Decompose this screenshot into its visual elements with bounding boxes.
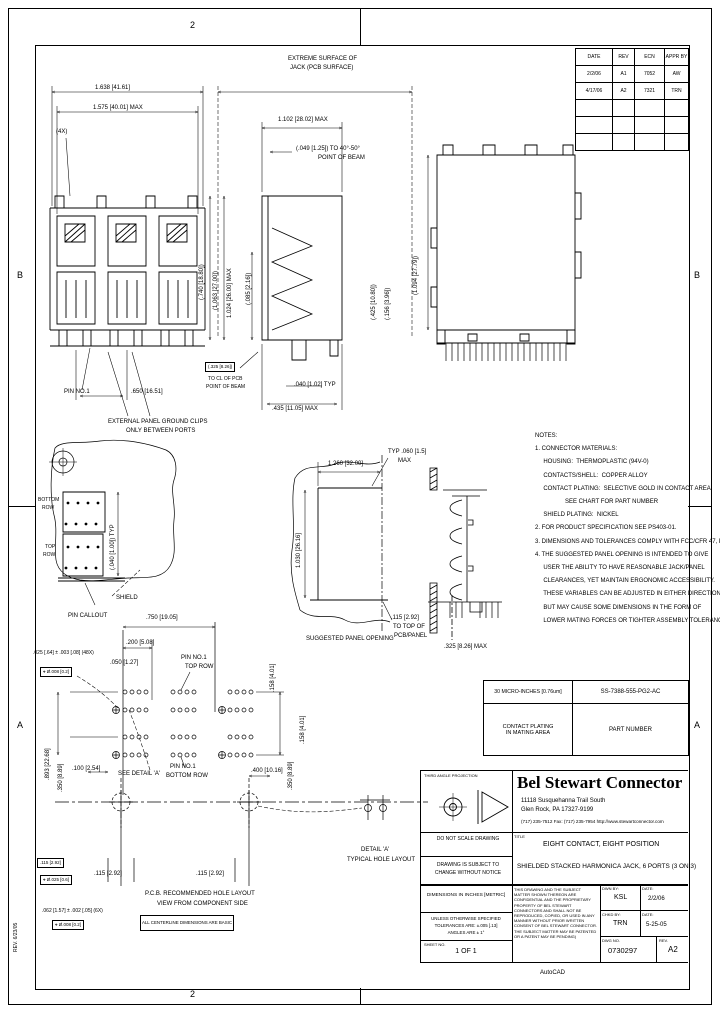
rev-col-date: DATE [576, 49, 613, 66]
dim-max-435: .435 [11.05] MAX [272, 406, 318, 413]
rev-cell: TRN [665, 83, 689, 100]
dim-mid-width: 1.102 [28.02] MAX [278, 117, 328, 124]
rev-cell-empty [635, 117, 665, 134]
dim-panel-115-2: TO TOP OF [393, 624, 425, 631]
rev-cell: A2 [613, 83, 635, 100]
rev-cell-empty [665, 100, 689, 117]
company-address-1: 11118 Susquehanna Trail South [521, 798, 605, 804]
label-pin-no1: PIN NO.1 [64, 389, 90, 396]
dim-to-cl: TO CL OF PCB [208, 376, 242, 383]
dim-typ-040: .040 [1.02] TYP [294, 382, 336, 389]
dim-panel-height: 1.030 [26.16] [296, 533, 303, 568]
dim-sec-085: (.085 [2.16]) [246, 273, 253, 305]
dim-pitch-650: .650 [16.51] [131, 389, 163, 396]
notes-block: NOTES: 1. CONNECTOR MATERIALS: HOUSING: … [535, 430, 720, 628]
part-number-value: SS-7388-555-PG2-AC [573, 681, 689, 704]
rev-cell: 7052 [635, 66, 665, 83]
gdt-frame-3: ⌖ Ø.008 [0.2] [52, 920, 84, 930]
dim-panel-115-1: .115 [2.92] [391, 615, 419, 622]
rev-col-rev: REV [613, 49, 635, 66]
label-drawn-by: DWN BY: [602, 886, 619, 891]
label-pcb-layout-title-2: VIEW FROM COMPONENT SIDE [157, 901, 248, 908]
proprietary-notice: THIS DRAWING AND THE SUBJECT MATTER SHOW… [514, 887, 598, 939]
gdt-frame-2: ⌖ Ø.025 [0.6] [40, 875, 72, 885]
dim-pcb-115-a: .115 [2.92] [94, 871, 122, 878]
divider-line [420, 770, 688, 771]
label-tolerance-2: TOLERANCES ARE: ±.005 [.13] [420, 923, 512, 928]
front-view [50, 196, 205, 346]
label-change-notice-2: CHANGE WITHOUT NOTICE [424, 870, 512, 876]
label-units: DIMENSIONS IN INCHES [METRIC] [420, 893, 512, 898]
dim-pcb-158-right: .158 [4.01] [300, 716, 307, 744]
value-checked-by: TRN [613, 920, 627, 927]
drawing-title-2: SHIELDED STACKED HARMONICA JACK, 6 PORTS… [517, 863, 696, 870]
rev-col-ecn: ECN [635, 49, 665, 66]
dim-pcb-750: .750 [19.05] [146, 615, 178, 622]
third-angle-projection-icon [439, 790, 508, 824]
label-detail-a-2: TYPICAL HOLE LAYOUT [347, 857, 415, 864]
dim-pcb-893: .893 [22.68] [45, 748, 52, 780]
label-pcb-pin1-top-1: PIN NO.1 [181, 655, 207, 662]
divider-line [512, 770, 513, 962]
rev-cell-empty [613, 134, 635, 151]
rev-cell-empty [613, 100, 635, 117]
divider-line [600, 936, 688, 937]
divider-line [420, 856, 512, 857]
label-change-notice-1: DRAWING IS SUBJECT TO [424, 862, 512, 868]
value-checked-date: 5-25-05 [646, 922, 667, 928]
label-title: TITLE [514, 834, 525, 839]
company-address-2: Glen Rock, PA 17327-9199 [521, 807, 593, 813]
label-bottom-row-2: ROW [42, 505, 54, 512]
dim-posts-4x: (4X) [56, 129, 67, 136]
dim-basic-325: (.325 [8.26]) [205, 362, 235, 372]
part-number-label: PART NUMBER [573, 704, 689, 756]
dim-pcb-050: .050 [1.27] [110, 660, 138, 667]
label-checked-by: CHKD BY: [602, 912, 621, 917]
dim-pcb-350-left: .350 [8.89] [58, 764, 65, 792]
dim-typ-040b: (.040 [1.00]) TYP [110, 524, 117, 570]
label-pcb-pin1-bottom-1: PIN NO.1 [170, 764, 196, 771]
label-see-detail-a: SEE DETAIL 'A' [118, 771, 160, 778]
plating-label: CONTACT PLATING IN MATING AREA [484, 704, 573, 756]
plating-label-line2: IN MATING AREA [506, 730, 550, 736]
company-contact: (717) 235-7512 Fax: (717) 235-7954 http:… [521, 819, 664, 824]
rev-col-appr: APPR BY [665, 49, 689, 66]
dim-tol-48x: .025 [.64] ± .003 [.08] (48X) [33, 650, 94, 657]
rear-view [431, 145, 581, 361]
rev-cell: AW [665, 66, 689, 83]
part-number-table: 30 MICRO-INCHES [0.76um] SS-7388-555-PG2… [483, 680, 689, 756]
dim-rear-1094: (1.094 [27.79]) [413, 256, 420, 295]
label-tolerance-3: ANGLES ARE ± 1° [420, 930, 512, 935]
value-sheet: 1 OF 1 [420, 948, 512, 955]
rev-cell-empty [576, 117, 613, 134]
label-shield: SHIELD [116, 595, 138, 602]
dim-beam-3: POINT OF BEAM [206, 384, 245, 391]
company-name: Bel Stewart Connector [517, 773, 682, 793]
rev-cell: 4/17/06 [576, 83, 613, 100]
dim-rear-156: (.156 [3.96]) [385, 288, 392, 320]
section-view [262, 196, 342, 360]
rev-cell-empty [635, 100, 665, 117]
note-ground-clips-2: ONLY BETWEEN PORTS [126, 428, 195, 435]
rev-cell-empty [576, 134, 613, 151]
rev-cell-empty [665, 134, 689, 151]
dim-width-max: 1.575 [40.01] MAX [93, 105, 143, 112]
dim-beam-1: (.049 [1.25]) TO 40°-50° [296, 146, 360, 153]
rev-cell: A1 [613, 66, 635, 83]
position-symbols [113, 707, 226, 759]
divider-line [656, 936, 657, 962]
label-dwg-no: DWG NO. [602, 938, 620, 943]
label-top-row-1: TOP [45, 544, 55, 551]
dim-sec-1024: 1.024 [26.00] MAX [227, 268, 234, 318]
drawing-title-1: EIGHT CONTACT, EIGHT POSITION [543, 841, 659, 848]
rev-cell-empty [665, 117, 689, 134]
label-pcb-pin1-bottom-2: BOTTOM ROW [166, 773, 208, 780]
dim-overall-width: 1.638 [41.61] [95, 85, 130, 92]
divider-line [640, 884, 641, 936]
dim-pcb-350-right: .350 [8.89] [288, 762, 295, 790]
dim-pcb-158: .158 [4.01] [270, 664, 277, 692]
label-bottom-row-1: BOTTOM [38, 497, 59, 504]
divider-line [420, 940, 512, 941]
dim-panel-typ-1: TYP .060 [1.5] [388, 449, 426, 456]
rev-cell: 7321 [635, 83, 665, 100]
rev-cell-empty [576, 100, 613, 117]
label-do-not-scale: DO NOT SCALE DRAWING [424, 836, 512, 842]
value-rev: A2 [668, 945, 678, 954]
label-panel-opening: SUGGESTED PANEL OPENING [306, 636, 394, 643]
divider-line [600, 910, 688, 911]
note-basic-dimensions: ALL CENTERLINE DIMENSIONS ARE BASIC [140, 915, 234, 931]
label-rev: REV. [659, 938, 668, 943]
label-pcb-pin1-top-2: TOP ROW [185, 664, 213, 671]
dim-pcb-115-b: .115 [2.92] [196, 871, 224, 878]
rev-cell-empty [635, 134, 665, 151]
divider-line [600, 884, 601, 962]
dim-sec-1063: (1.063 [27.00]) [213, 271, 220, 310]
label-tolerance-1: UNLESS OTHERWISE SPECIFIED [420, 916, 512, 921]
dim-panel-typ-2: MAX [398, 458, 411, 465]
divider-line [420, 832, 688, 833]
dim-basic-115: .115 [2.92] [37, 858, 64, 868]
dimension-lines [52, 86, 428, 812]
cad-note: AutoCAD [540, 970, 565, 976]
dim-pcb-100: .100 [2.54] [72, 766, 100, 773]
dim-panel-width: 1.260 [32.00] [328, 461, 363, 468]
label-pin-callout: PIN CALLOUT [68, 613, 107, 620]
label-checked-date: DATE: [642, 912, 653, 917]
label-drawn-date: DATE: [642, 886, 653, 891]
label-top-row-2: ROW [43, 552, 55, 559]
label-sheet-no: SHEET NO. [424, 942, 446, 947]
note-surface-2: JACK (PCB SURFACE) [290, 65, 353, 72]
dim-sec-740: (.740 [18.80]) [199, 264, 206, 300]
dim-pcb-200: .200 [5.08] [126, 640, 154, 647]
shield-section-view [428, 468, 502, 640]
rev-cell-empty [613, 117, 635, 134]
label-third-angle: THIRD ANGLE PROJECTION [424, 773, 478, 778]
note-surface-1: EXTREME SURFACE OF [288, 56, 357, 63]
dim-pcb-400: .400 [10.16] [251, 768, 283, 775]
plating-value: 30 MICRO-INCHES [0.76um] [484, 681, 573, 704]
dim-beam-2: POINT OF BEAM [318, 155, 365, 162]
mounting-holes [109, 790, 261, 814]
divider-line [420, 962, 688, 963]
value-drawn-by: KSL [614, 894, 627, 901]
rev-cell: 2/2/06 [576, 66, 613, 83]
dim-tol-6x: .062 [1.57] ± .002 [.05] (6X) [42, 908, 103, 915]
gdt-frame-1: ⌖ Ø.008 [0.2] [40, 667, 72, 677]
label-pcb-layout-title-1: P.C.B. RECOMMENDED HOLE LAYOUT [145, 891, 255, 898]
drawing-sheet: 2 2 B A B A REV. 6/23/05 [0, 0, 720, 1012]
value-drawn-date: 2/2/06 [648, 896, 665, 902]
revision-table: DATE REV ECN APPR BY 2/2/06 A1 7052 AW 4… [575, 48, 689, 151]
divider-line [420, 912, 512, 913]
label-detail-a-1: DETAIL 'A' [361, 847, 389, 854]
panel-opening-view [291, 455, 390, 632]
dim-rear-425: (.425 [10.80]) [371, 284, 378, 320]
value-dwg-no: 0730297 [608, 946, 637, 955]
detail-a-holes [360, 795, 390, 820]
dim-panel-115-3: PCB/PANEL [394, 633, 427, 640]
note-ground-clips-1: EXTERNAL PANEL GROUND CLIPS [108, 419, 207, 426]
dim-shield-max: .325 [8.26] MAX [444, 644, 487, 651]
